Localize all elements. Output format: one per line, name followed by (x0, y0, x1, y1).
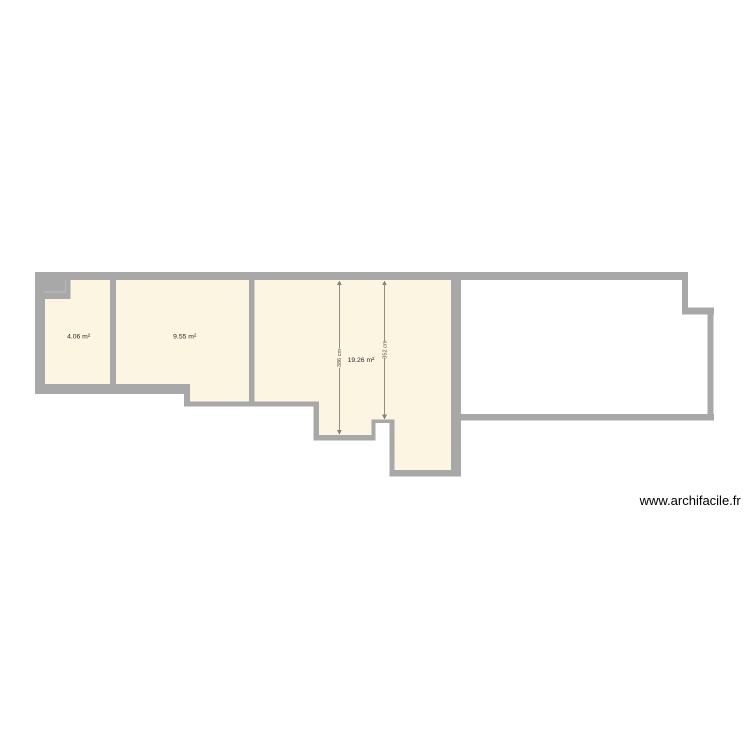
svg-text:4.06 m²: 4.06 m² (67, 333, 91, 340)
svg-text:386 cm: 386 cm (337, 348, 343, 367)
svg-text:19.26 m²: 19.26 m² (348, 357, 376, 364)
svg-text:352 cm: 352 cm (382, 340, 388, 359)
svg-text:9.55 m²: 9.55 m² (173, 333, 197, 340)
svg-text:www.archifacile.fr: www.archifacile.fr (639, 493, 742, 508)
